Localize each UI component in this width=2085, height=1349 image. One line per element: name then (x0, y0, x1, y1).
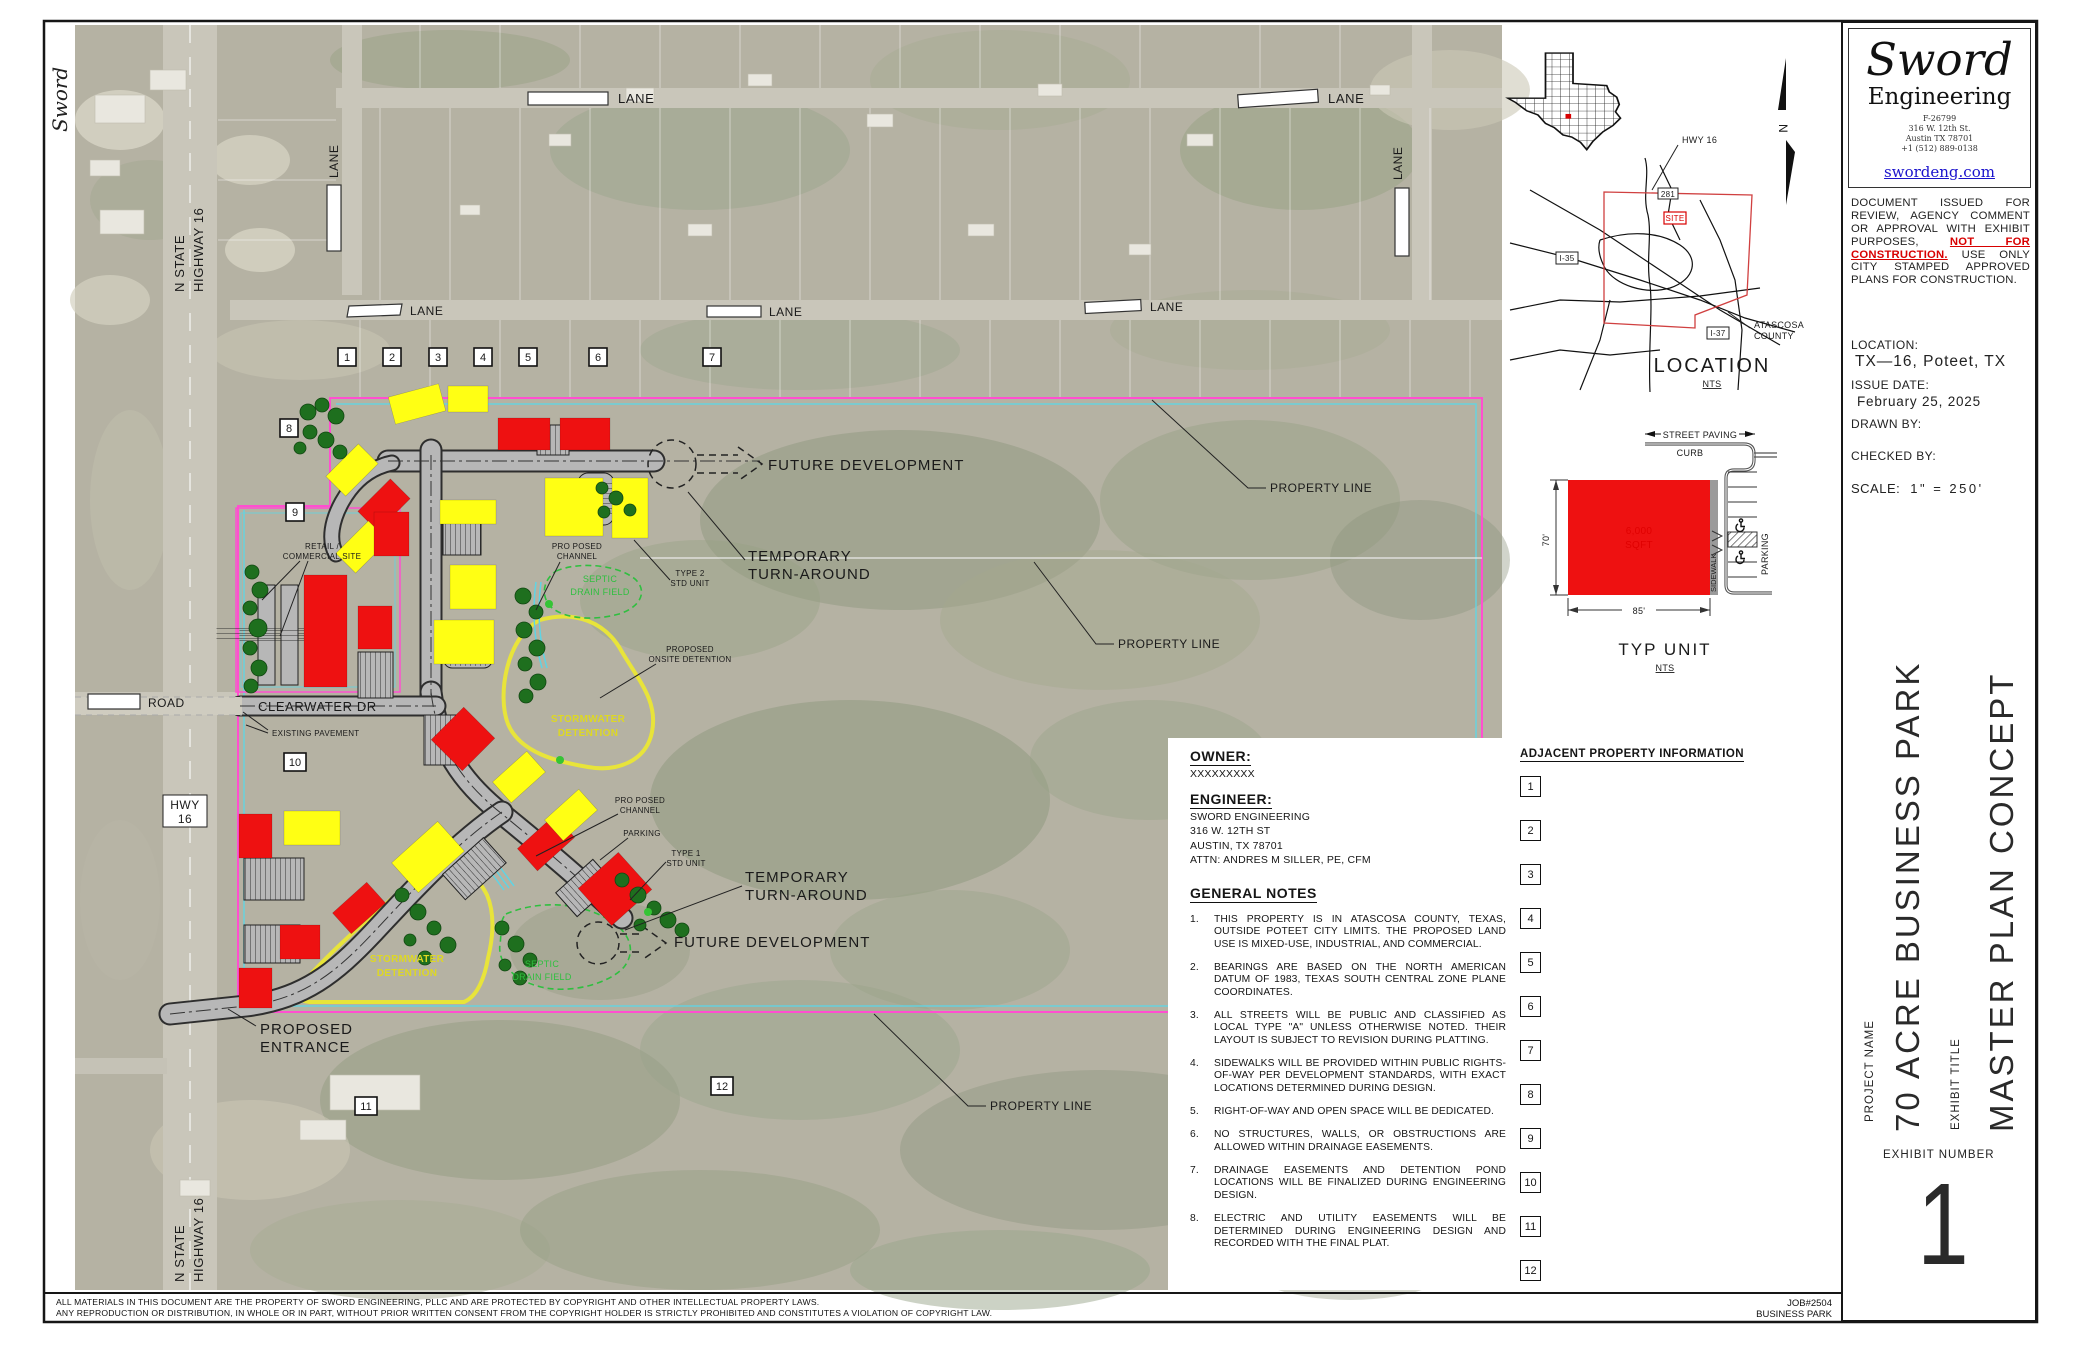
typ-parking-label: PARKING (1760, 533, 1770, 575)
issue-date-value: February 25, 2025 (1857, 394, 1981, 409)
firm-address-1: 316 W. 12th St. (1849, 124, 2030, 134)
county-label-1: ATASCOSA (1754, 320, 1804, 330)
general-note-4: 4.SIDEWALKS WILL BE PROVIDED WITHIN PUBL… (1190, 1058, 1508, 1095)
svg-text:1: 1 (344, 352, 350, 364)
type1-label-2: STD UNIT (666, 859, 705, 868)
typ-unit-title: TYP UNIT (1618, 640, 1711, 659)
issue-notice: DOCUMENT ISSUED FOR REVIEW, AGENCY COMME… (1851, 197, 2030, 287)
svg-text:9: 9 (292, 507, 298, 519)
leader-county (1728, 312, 1750, 328)
onsite-detention-label-1: PROPOSED (666, 645, 714, 654)
owner-heading: OWNER: (1190, 748, 1251, 766)
svg-text:4: 4 (480, 352, 486, 364)
general-note-5: 5.RIGHT-OF-WAY AND OPEN SPACE WILL BE DE… (1190, 1106, 1508, 1118)
type1-label-1: TYPE 1 (671, 849, 701, 858)
adjacent-row-2: 2 (1520, 806, 1780, 850)
engineer-line-3: AUSTIN, TX 78701 (1190, 840, 1508, 853)
future-development-label-upper: FUTURE DEVELOPMENT (768, 457, 964, 474)
texas-map (1508, 53, 1621, 150)
exhibit-number: 1 (1905, 1157, 1982, 1291)
engineer-line-4: ATTN: ANDRES M SILLER, PE, CFM (1190, 854, 1508, 867)
inset-hwy16-label: HWY 16 (1682, 135, 1717, 145)
firm-address-2: Austin TX 78701 (1849, 134, 2030, 144)
marker-5: 5 (519, 348, 537, 366)
marker-1: 1 (338, 348, 356, 366)
engineer-line-1: SWORD ENGINEERING (1190, 811, 1508, 824)
lane-sign-vert-left (327, 185, 341, 251)
stormwater-label-lower-1: STORMWATER (370, 954, 445, 965)
general-note-2: 2.BEARINGS ARE BASED ON THE NORTH AMERIC… (1190, 962, 1508, 999)
clearwater-dr-label: CLEARWATER DR (258, 699, 377, 714)
n-state-hwy-label-top-1: N STATE (172, 235, 187, 292)
property-line-label-3: PROPERTY LINE (990, 1099, 1092, 1113)
typ-unit-footprint (1568, 480, 1710, 595)
location-nts: NTS (1703, 379, 1722, 389)
plan-sheet: FUTURE DEVELOPMENT FUTURE DEVELOPMENT TE… (0, 0, 2085, 1349)
adjacent-row-9: 9 (1520, 1114, 1780, 1158)
temporary-turnaround-label-upper-1: TEMPORARY (748, 548, 852, 565)
firm-logo-subtitle: Engineering (1849, 84, 2030, 110)
hwy16-label-2: 16 (178, 812, 192, 826)
lane-sign-top-1 (528, 92, 608, 105)
proposed-channel-label-1b: CHANNEL (557, 552, 598, 561)
lane-label-mid-2: LANE (769, 305, 802, 319)
location-inset: N HWY 16 281 SITE I-35 I-37 ATASCOSA COU… (1508, 53, 1804, 392)
road-sign (88, 694, 140, 709)
copyright-line-2: ANY REPRODUCTION OR DISTRIBUTION, IN WHO… (56, 1308, 1616, 1319)
checked-by-label: CHECKED BY: (1851, 449, 1936, 463)
proposed-entrance-label-1: PROPOSED (260, 1021, 353, 1038)
temporary-turnaround-label-lower-1: TEMPORARY (745, 869, 849, 886)
adjacent-row-10: 10 (1520, 1158, 1780, 1202)
site-label: SITE (1666, 214, 1685, 223)
i37-label: I-37 (1711, 329, 1726, 338)
notes-panel: OWNER: XXXXXXXXX ENGINEER: SWORD ENGINEE… (1168, 738, 1795, 1290)
lane-label-vert-right: LANE (1391, 147, 1405, 180)
adjacent-row-11: 11 (1520, 1202, 1780, 1246)
existing-pavement-label: EXISTING PAVEMENT (272, 729, 359, 738)
adjacent-property-heading: ADJACENT PROPERTY INFORMATION (1520, 748, 1744, 762)
adjacent-row-7: 7 (1520, 1026, 1780, 1070)
adjacent-row-12: 12 (1520, 1246, 1780, 1290)
svg-text:5: 5 (525, 352, 531, 364)
north-arrow: N (1776, 58, 1795, 205)
adjacent-row-8: 8 (1520, 1070, 1780, 1114)
engineer-line-2: 316 W. 12TH ST (1190, 825, 1508, 838)
hwy16-label-1: HWY (170, 798, 200, 812)
septic-label-upper-1: SEPTIC (583, 574, 618, 584)
marker-2: 2 (383, 348, 401, 366)
proposed-channel-label-1a: PRO POSED (552, 542, 602, 551)
job-name: BUSINESS PARK (1680, 1309, 1832, 1320)
proposed-entrance-label-2: ENTRANCE (260, 1039, 351, 1056)
adjacent-row-1: 1 (1520, 762, 1780, 806)
general-note-6: 6.NO STRUCTURES, WALLS, OR OBSTRUCTIONS … (1190, 1129, 1508, 1154)
property-line-label-2: PROPERTY LINE (1118, 637, 1220, 651)
scale-label: SCALE: (1851, 481, 1900, 496)
lane-sign-mid-1 (347, 304, 402, 317)
stormwater-label-upper-1: STORMWATER (551, 714, 626, 725)
general-note-8: 8.ELECTRIC AND UTILITY EASEMENTS WILL BE… (1190, 1213, 1508, 1250)
stormwater-label-upper-2: DETENTION (558, 728, 618, 739)
marker-7: 7 (703, 348, 721, 366)
typ-area-label-1: 6,000 (1626, 526, 1653, 537)
project-name-label: PROJECT NAME (1864, 1020, 1876, 1122)
svg-text:11: 11 (360, 1101, 371, 1113)
firm-website-link[interactable]: swordeng.com (1884, 163, 1995, 181)
marker-8: 8 (280, 419, 298, 437)
n-state-hwy-label-bottom-1: N STATE (172, 1225, 187, 1282)
svg-text:8: 8 (286, 423, 292, 435)
svg-text:12: 12 (716, 1081, 728, 1093)
septic-label-lower-1: SEPTIC (525, 959, 560, 969)
scale-row: SCALE:1" = 250' (1851, 481, 1984, 496)
firm-phone: +1 (512) 889-0138 (1849, 144, 2030, 154)
lane-label-mid-3: LANE (1150, 300, 1183, 314)
job-number: JOB#2504 (1680, 1298, 1832, 1309)
future-development-label-lower: FUTURE DEVELOPMENT (674, 934, 870, 951)
adjacent-property-column: ADJACENT PROPERTY INFORMATION 1 2 3 4 5 … (1520, 748, 1780, 1290)
parking-stalls (1728, 472, 1757, 577)
lane-sign-mid-3 (1085, 300, 1141, 314)
temporary-turnaround-label-lower-2: TURN-AROUND (745, 887, 868, 904)
dim-85-label: 85' (1633, 606, 1646, 616)
septic-label-upper-2: DRAIN FIELD (570, 587, 630, 597)
svg-text:3: 3 (435, 352, 441, 364)
location-title: LOCATION (1654, 355, 1771, 377)
title-block: Sword Engineering F-26799 316 W. 12th St… (1841, 21, 2037, 1322)
marker-6: 6 (589, 348, 607, 366)
copyright-notice: ALL MATERIALS IN THIS DOCUMENT ARE THE P… (56, 1297, 1616, 1319)
exhibit-title: MASTER PLAN CONCEPT (1983, 672, 2021, 1132)
typ-unit-nts: NTS (1656, 663, 1675, 673)
general-note-3: 3.ALL STREETS WILL BE PUBLIC AND CLASSIF… (1190, 1010, 1508, 1047)
lane-label-top-2: LANE (1328, 91, 1364, 106)
lane-sign-vert-right (1395, 188, 1409, 256)
project-name: 70 ACRE BUSINESS PARK (1889, 661, 1927, 1132)
route281-label: 281 (1661, 190, 1675, 199)
accessible-symbol-1 (1736, 519, 1745, 532)
curb-label: CURB (1677, 448, 1704, 458)
lane-label-vert-left: LANE (327, 145, 341, 178)
job-block: JOB#2504 BUSINESS PARK (1680, 1298, 1832, 1321)
proposed-channel-label-2b: CHANNEL (620, 806, 661, 815)
marker-3: 3 (429, 348, 447, 366)
copyright-line-1: ALL MATERIALS IN THIS DOCUMENT ARE THE P… (56, 1297, 1616, 1308)
n-state-hwy-label-top-2: HIGHWAY 16 (191, 207, 206, 292)
lane-sign-mid-2 (707, 306, 761, 317)
county-label-2: COUNTY (1754, 331, 1794, 341)
lane-label-top-1: LANE (618, 91, 654, 106)
svg-text:6: 6 (595, 352, 601, 364)
marker-9: 9 (286, 503, 304, 521)
retail-label-2: COMMERCIAL SITE (283, 552, 361, 561)
general-notes-heading: GENERAL NOTES (1190, 885, 1317, 903)
exhibit-title-label: EXHIBIT TITLE (1950, 1038, 1962, 1130)
margin-brand: Sword (48, 67, 72, 132)
road-label: ROAD (148, 696, 185, 710)
svg-text:10: 10 (289, 757, 301, 769)
location-field-value: TX—16, Poteet, TX (1855, 353, 2006, 371)
typ-unit-detail: STREET PAVING CURB PARKING 6,000 SQFT SI… (1541, 430, 1777, 673)
marker-12: 12 (711, 1077, 733, 1095)
general-note-1: 1.THIS PROPERTY IS IN ATASCOSA COUNTY, T… (1190, 914, 1508, 951)
notes-left-column: OWNER: XXXXXXXXX ENGINEER: SWORD ENGINEE… (1190, 748, 1508, 1250)
temporary-turnaround-label-upper-2: TURN-AROUND (748, 566, 871, 583)
firm-logo: Sword (1849, 33, 2030, 86)
adjacent-row-3: 3 (1520, 850, 1780, 894)
drawn-by-label: DRAWN BY: (1851, 417, 1922, 431)
access-aisle-hatch (1728, 532, 1757, 547)
sidewalk-label: SIDEWALK (1709, 554, 1718, 592)
street-paving-label: STREET PAVING (1663, 430, 1737, 440)
type2-label-1: TYPE 2 (675, 569, 705, 578)
location-field-label: LOCATION: (1851, 338, 1918, 352)
marker-4: 4 (474, 348, 492, 366)
n-state-hwy-label-bottom-2: HIGHWAY 16 (191, 1197, 206, 1282)
general-note-7: 7.DRAINAGE EASEMENTS AND DETENTION POND … (1190, 1165, 1508, 1202)
scale-value: 1" = 250' (1910, 481, 1983, 496)
firm-number: F-26799 (1849, 114, 2030, 124)
north-label: N (1776, 124, 1790, 133)
property-line-label-1: PROPERTY LINE (1270, 481, 1372, 495)
type2-label-2: STD UNIT (670, 579, 709, 588)
stormwater-label-lower-2: DETENTION (377, 968, 437, 979)
typ-area-label-2: SQFT (1625, 540, 1653, 551)
marker-10: 10 (284, 753, 306, 771)
retail-label-1: RETAIL / (305, 542, 339, 551)
firm-logo-block: Sword Engineering F-26799 316 W. 12th St… (1848, 28, 2031, 188)
adjacent-row-6: 6 (1520, 982, 1780, 1026)
svg-text:7: 7 (709, 352, 715, 364)
adjacent-row-5: 5 (1520, 938, 1780, 982)
engineer-heading: ENGINEER: (1190, 791, 1272, 809)
svg-text:2: 2 (389, 352, 395, 364)
marker-11: 11 (355, 1097, 377, 1115)
septic-label-lower-2: DRAIN FIELD (512, 972, 572, 982)
onsite-detention-label-2: ONSITE DETENTION (648, 655, 731, 664)
lane-label-mid-1: LANE (410, 304, 443, 318)
adjacent-row-4: 4 (1520, 894, 1780, 938)
dim-70-label: 70' (1541, 534, 1551, 547)
owner-value: XXXXXXXXX (1190, 768, 1508, 781)
dim-70 (1550, 480, 1568, 595)
i35-label: I-35 (1560, 254, 1575, 263)
texas-site-dot (1566, 114, 1572, 119)
parking-label: PARKING (623, 829, 661, 838)
proposed-channel-label-2a: PRO POSED (615, 796, 665, 805)
issue-date-label: ISSUE DATE: (1851, 378, 1929, 392)
leader-hwy16-inset (1652, 145, 1678, 190)
